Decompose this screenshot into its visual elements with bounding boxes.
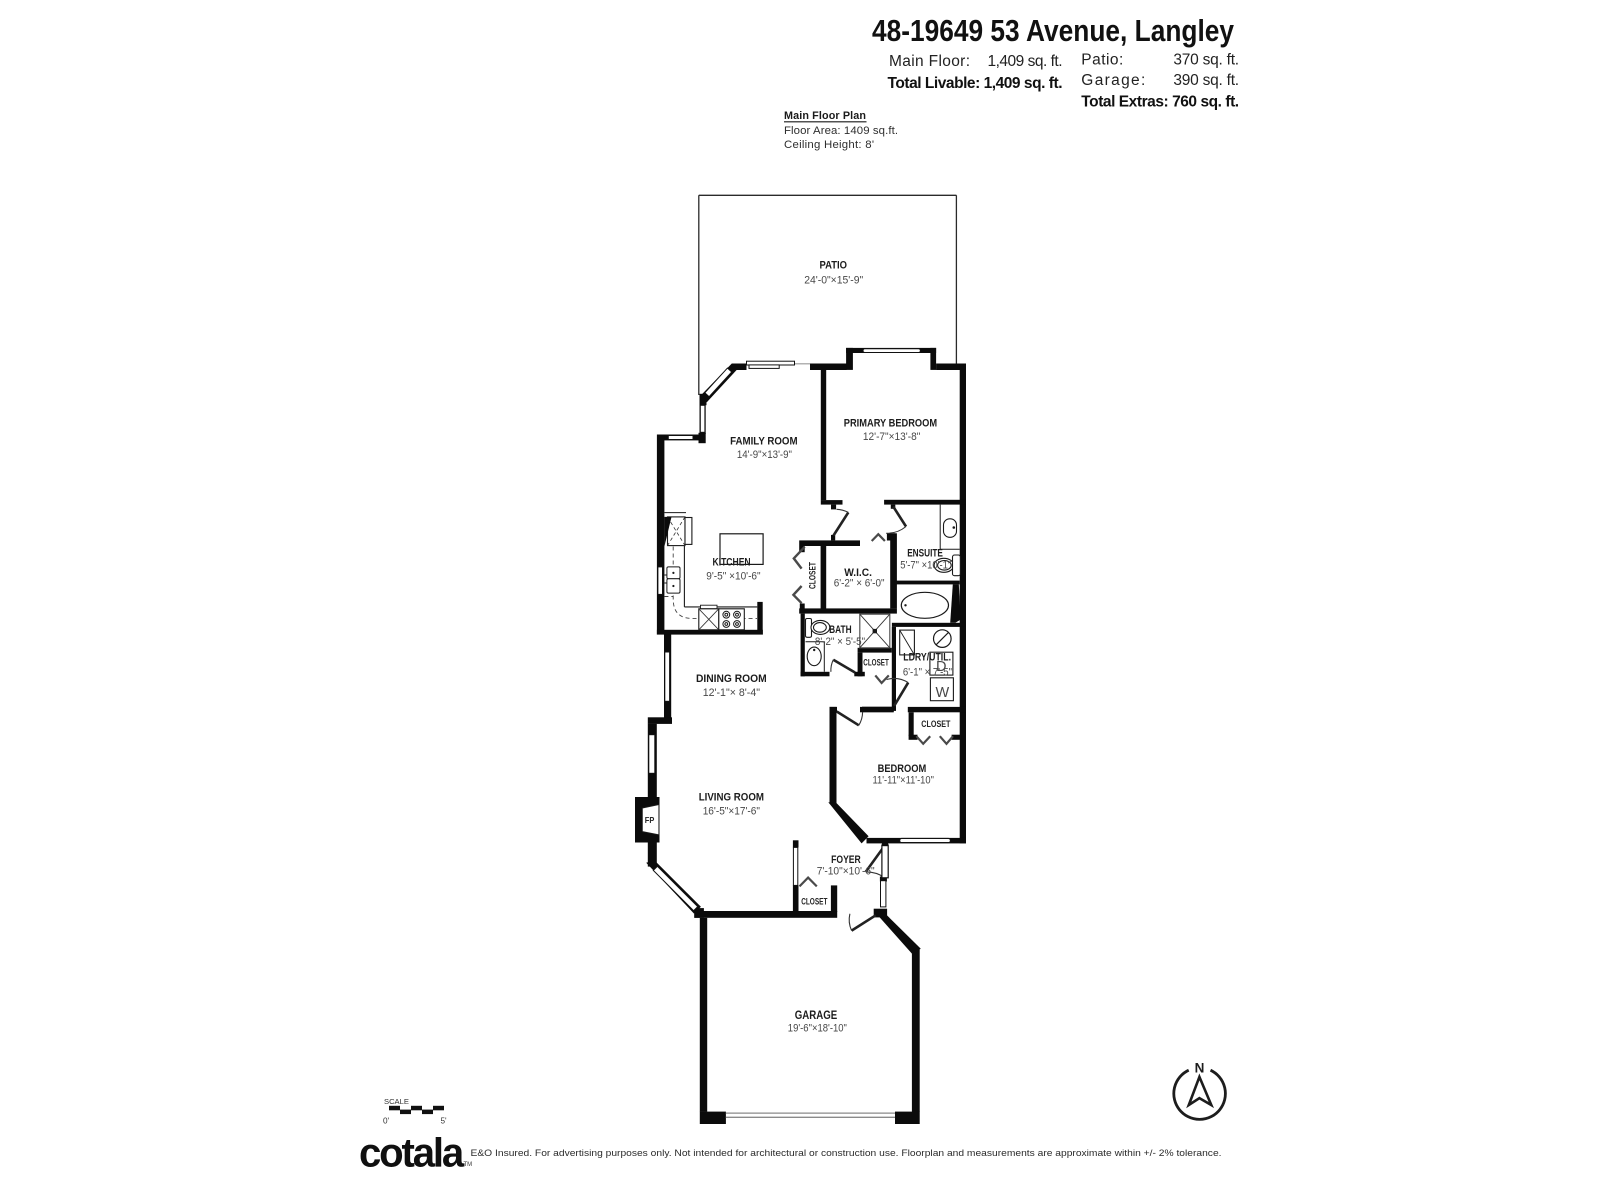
svg-text:E&O Insured. For advertising p: E&O Insured. For advertising purposes on… [471,1148,1222,1158]
svg-text:8'-2" × 5'-5": 8'-2" × 5'-5" [815,636,865,648]
svg-text:11'-11"×11'-10": 11'-11"×11'-10" [873,775,934,787]
svg-text:cotala: cotala [359,1130,465,1176]
svg-text:CLOSET: CLOSET [808,562,818,589]
svg-text:D: D [936,659,946,675]
svg-text:48-19649 53 Avenue, Langley: 48-19649 53 Avenue, Langley [872,13,1235,48]
svg-text:KITCHEN: KITCHEN [713,557,751,569]
svg-text:ENSUITE: ENSUITE [907,547,943,559]
svg-text:PRIMARY BEDROOM: PRIMARY BEDROOM [844,417,937,429]
svg-text:FAMILY ROOM: FAMILY ROOM [730,435,798,447]
svg-text:Main Floor Plan: Main Floor Plan [784,110,866,122]
svg-text:7'-10"×10'-6": 7'-10"×10'-6" [817,866,875,878]
svg-text:LIVING ROOM: LIVING ROOM [699,792,764,804]
svg-text:Floor Area: 1409 sq.ft.: Floor Area: 1409 sq.ft. [784,125,898,137]
svg-text:24'-0"×15'-9": 24'-0"×15'-9" [804,274,863,286]
svg-text:0': 0' [383,1117,390,1126]
svg-text:FP: FP [645,815,655,825]
svg-text:1,409 sq. ft.: 1,409 sq. ft. [988,53,1063,70]
svg-text:12'-1"× 8'-4": 12'-1"× 8'-4" [703,687,760,699]
svg-text:DINING ROOM: DINING ROOM [696,673,767,685]
svg-text:12'-7"×13'-8": 12'-7"×13'-8" [863,431,920,443]
svg-text:19'-6"×18'-10": 19'-6"×18'-10" [788,1022,847,1034]
svg-text:Total Livable: 1,409 sq. ft.: Total Livable: 1,409 sq. ft. [888,75,1063,92]
svg-text:390 sq. ft.: 390 sq. ft. [1173,72,1239,89]
svg-text:Ceiling Height: 8': Ceiling Height: 8' [784,139,874,151]
svg-text:5': 5' [441,1117,448,1126]
svg-text:9'-5" ×10'-6": 9'-5" ×10'-6" [706,570,760,582]
svg-text:FOYER: FOYER [831,854,861,866]
svg-text:SCALE: SCALE [384,1097,409,1106]
svg-text:TM: TM [464,1162,473,1168]
svg-text:370 sq. ft.: 370 sq. ft. [1173,52,1239,69]
svg-text:Patio:: Patio: [1081,52,1123,69]
svg-text:Garage:: Garage: [1081,72,1145,89]
svg-text:Main Floor:: Main Floor: [889,53,970,70]
svg-text:CLOSET: CLOSET [921,719,951,729]
svg-text:W: W [936,685,950,701]
svg-text:CLOSET: CLOSET [863,658,889,668]
svg-text:PATIO: PATIO [820,259,848,271]
svg-text:5'-7" ×10'-1": 5'-7" ×10'-1" [900,559,951,571]
svg-text:BATH: BATH [829,624,852,636]
svg-text:GARAGE: GARAGE [795,1010,838,1022]
svg-text:14'-9"×13'-9": 14'-9"×13'-9" [737,449,792,461]
svg-text:CLOSET: CLOSET [801,896,828,906]
svg-text:BEDROOM: BEDROOM [878,763,927,775]
svg-text:Total Extras: 760 sq. ft.: Total Extras: 760 sq. ft. [1081,94,1239,111]
svg-text:N: N [1195,1061,1205,1076]
svg-text:6'-2" × 6'-0": 6'-2" × 6'-0" [834,578,885,590]
svg-text:16'-5"×17'-6": 16'-5"×17'-6" [703,806,760,818]
